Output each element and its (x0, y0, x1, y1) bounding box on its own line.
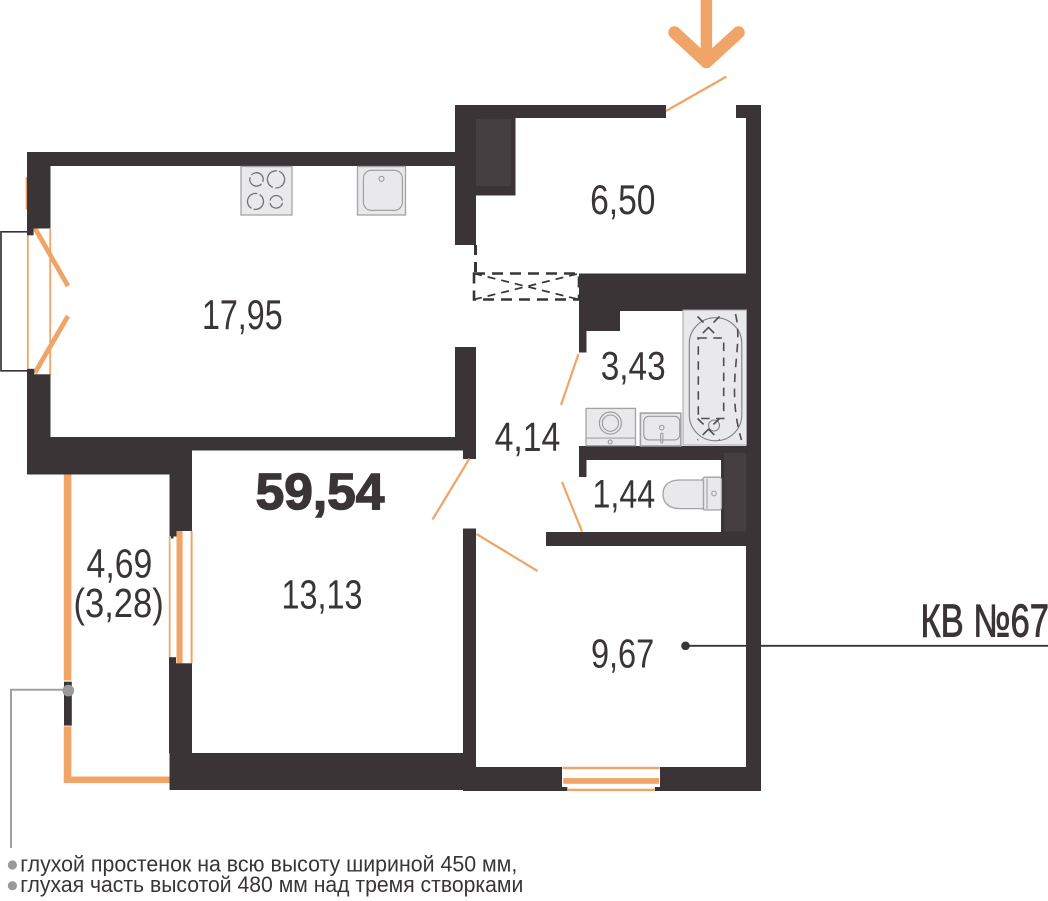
svg-text:17,95: 17,95 (202, 292, 283, 338)
svg-text:13,13: 13,13 (282, 572, 363, 618)
svg-text:59,54: 59,54 (256, 463, 385, 520)
svg-text:(3,28): (3,28) (74, 580, 164, 626)
svg-text:4,14: 4,14 (495, 414, 561, 460)
svg-text:6,50: 6,50 (590, 176, 655, 223)
svg-text:глухая часть высотой 480 мм на: глухая часть высотой 480 мм над тремя ст… (20, 872, 523, 897)
svg-text:9,67: 9,67 (591, 630, 654, 676)
svg-text:КВ №67: КВ №67 (921, 595, 1048, 647)
svg-text:1,44: 1,44 (593, 473, 656, 517)
svg-text:3,43: 3,43 (601, 345, 666, 389)
